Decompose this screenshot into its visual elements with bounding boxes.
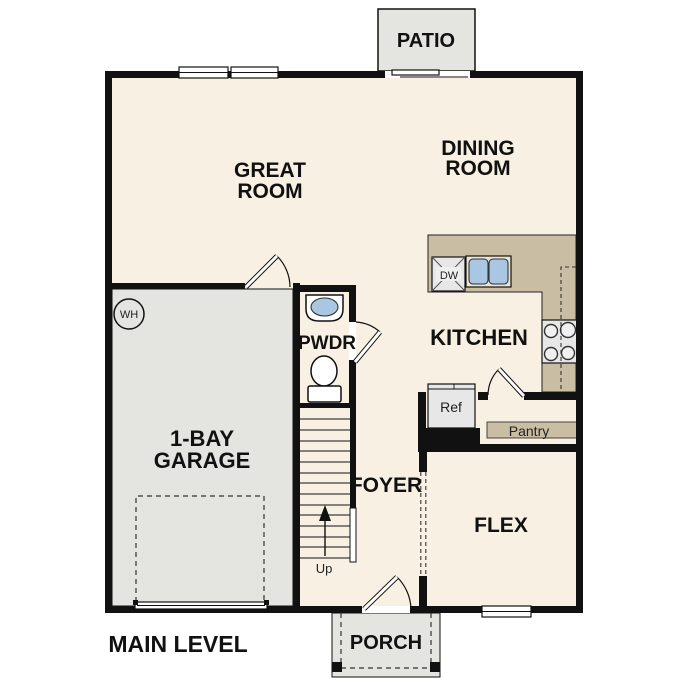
water-heater-label: WH	[120, 309, 138, 321]
toilet-tank	[308, 386, 341, 402]
toilet-bowl	[311, 356, 337, 386]
wall-garage-right	[293, 283, 300, 606]
main-level-title: MAIN LEVEL	[108, 631, 247, 657]
dining-room-label-line2: ROOM	[445, 157, 510, 180]
dishwasher-label: DW	[440, 270, 459, 282]
wall-exterior-left	[105, 71, 112, 613]
stair-railing	[350, 508, 356, 562]
wall-garage-top	[112, 283, 245, 289]
burner	[562, 347, 575, 360]
wall-exterior-right	[576, 71, 583, 613]
porch-post-left	[332, 662, 342, 672]
garage-door-stop-right	[264, 600, 269, 605]
porch-label: PORCH	[350, 632, 422, 654]
wall-exterior-top	[105, 71, 583, 78]
wall-powder-top	[300, 285, 356, 292]
stove	[542, 320, 577, 363]
great-room-label-line2: ROOM	[237, 180, 302, 203]
garage-label-line2: GARAGE	[154, 448, 251, 473]
pantry-label: Pantry	[509, 423, 549, 439]
wall-flex-left-lower	[419, 576, 427, 606]
garage-door-stop-left	[133, 600, 138, 605]
burner	[545, 348, 558, 361]
wall-pantry-top-left	[478, 392, 488, 400]
patio-label: PATIO	[397, 30, 455, 52]
wall-powder-right-lower	[349, 360, 356, 403]
porch-post-right	[430, 662, 440, 672]
sink-basin-left	[469, 259, 488, 284]
kitchen-label: KITCHEN	[430, 325, 528, 350]
floor-plan-svg: PATIO GREAT ROOM DINING ROOM KITCHEN PWD…	[0, 0, 687, 687]
patio-sliding-panel	[392, 70, 439, 75]
burner	[545, 325, 558, 338]
flex-label: FLEX	[474, 514, 528, 537]
floor-plan: PATIO GREAT ROOM DINING ROOM KITCHEN PWD…	[0, 0, 687, 687]
powder-sink	[306, 295, 343, 321]
great-room-label-line1: GREAT	[234, 159, 306, 182]
wall-flex-top	[418, 444, 583, 452]
wall-flex-left-upper	[419, 452, 427, 472]
kitchen-sink	[466, 256, 511, 287]
powder-label: PWDR	[298, 333, 356, 354]
foyer-label: FOYER	[350, 474, 422, 497]
wall-powder-bottom	[300, 403, 356, 408]
wall-powder-right-upper	[349, 292, 356, 322]
refrigerator-label: Ref	[440, 399, 462, 415]
stairs-up-label: Up	[316, 561, 333, 576]
burner	[561, 323, 576, 338]
vanity-basin	[311, 298, 338, 316]
sink-basin-right	[489, 259, 508, 284]
wall-pantry-top-right	[524, 392, 583, 400]
